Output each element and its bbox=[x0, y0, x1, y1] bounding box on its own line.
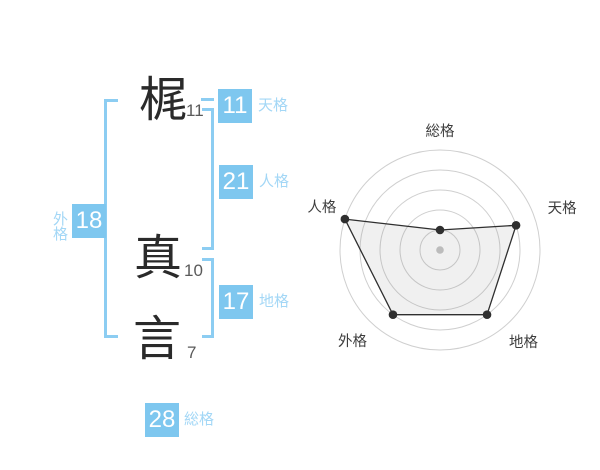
name-character-3: 言 bbox=[129, 315, 185, 363]
gaikaku-value-box: 18 bbox=[72, 204, 106, 238]
radar-point-0 bbox=[436, 226, 445, 235]
radar-axis-label-2: 地格 bbox=[509, 334, 538, 351]
soukaku-value-box: 28 bbox=[145, 403, 179, 437]
seimei-handan-panel: 梶 11 真 10 言 7 11 天格 21 人格 17 地格 18 外格 28… bbox=[0, 0, 600, 470]
chikaku-bracket-tick-bottom bbox=[202, 335, 214, 338]
tenkaku-value-box: 11 bbox=[218, 89, 252, 123]
radar-data-polygon bbox=[345, 219, 516, 315]
radar-point-1 bbox=[512, 221, 521, 230]
chikaku-label: 地格 bbox=[259, 294, 289, 309]
five-grids-radar-chart: 総格天格地格外格人格 bbox=[300, 105, 600, 375]
radar-axis-label-0: 総格 bbox=[426, 123, 455, 140]
stroke-count-2: 10 bbox=[184, 262, 203, 279]
name-character-1: 梶 bbox=[135, 76, 191, 124]
gaikaku-bracket-tick-top bbox=[104, 99, 118, 102]
gaikaku-label: 外格 bbox=[40, 212, 68, 242]
radar-point-3 bbox=[389, 310, 398, 319]
radar-point-2 bbox=[483, 310, 492, 319]
jinkaku-value-box: 21 bbox=[219, 165, 253, 199]
stroke-count-3: 7 bbox=[187, 344, 196, 361]
gaikaku-bracket-tick-bottom bbox=[104, 335, 118, 338]
radar-axis-label-4: 人格 bbox=[307, 199, 336, 216]
chikaku-bracket-line bbox=[211, 258, 214, 338]
chikaku-bracket-tick-top bbox=[202, 258, 214, 261]
jinkaku-label: 人格 bbox=[259, 174, 289, 189]
name-character-2: 真 bbox=[130, 234, 186, 282]
stroke-count-1: 11 bbox=[186, 102, 204, 119]
chikaku-value-box: 17 bbox=[219, 285, 253, 319]
tenkaku-label: 天格 bbox=[258, 98, 288, 113]
radar-axis-label-3: 外格 bbox=[338, 333, 367, 350]
radar-point-4 bbox=[341, 215, 350, 224]
jinkaku-bracket-tick-top bbox=[202, 108, 214, 111]
jinkaku-bracket-line bbox=[211, 108, 214, 250]
radar-center-dot bbox=[436, 246, 444, 254]
radar-axis-label-1: 天格 bbox=[548, 200, 577, 217]
jinkaku-bracket-tick-bottom bbox=[202, 247, 214, 250]
soukaku-label: 総格 bbox=[184, 412, 214, 427]
radar-chart-svg: 総格天格地格外格人格 bbox=[300, 105, 600, 375]
